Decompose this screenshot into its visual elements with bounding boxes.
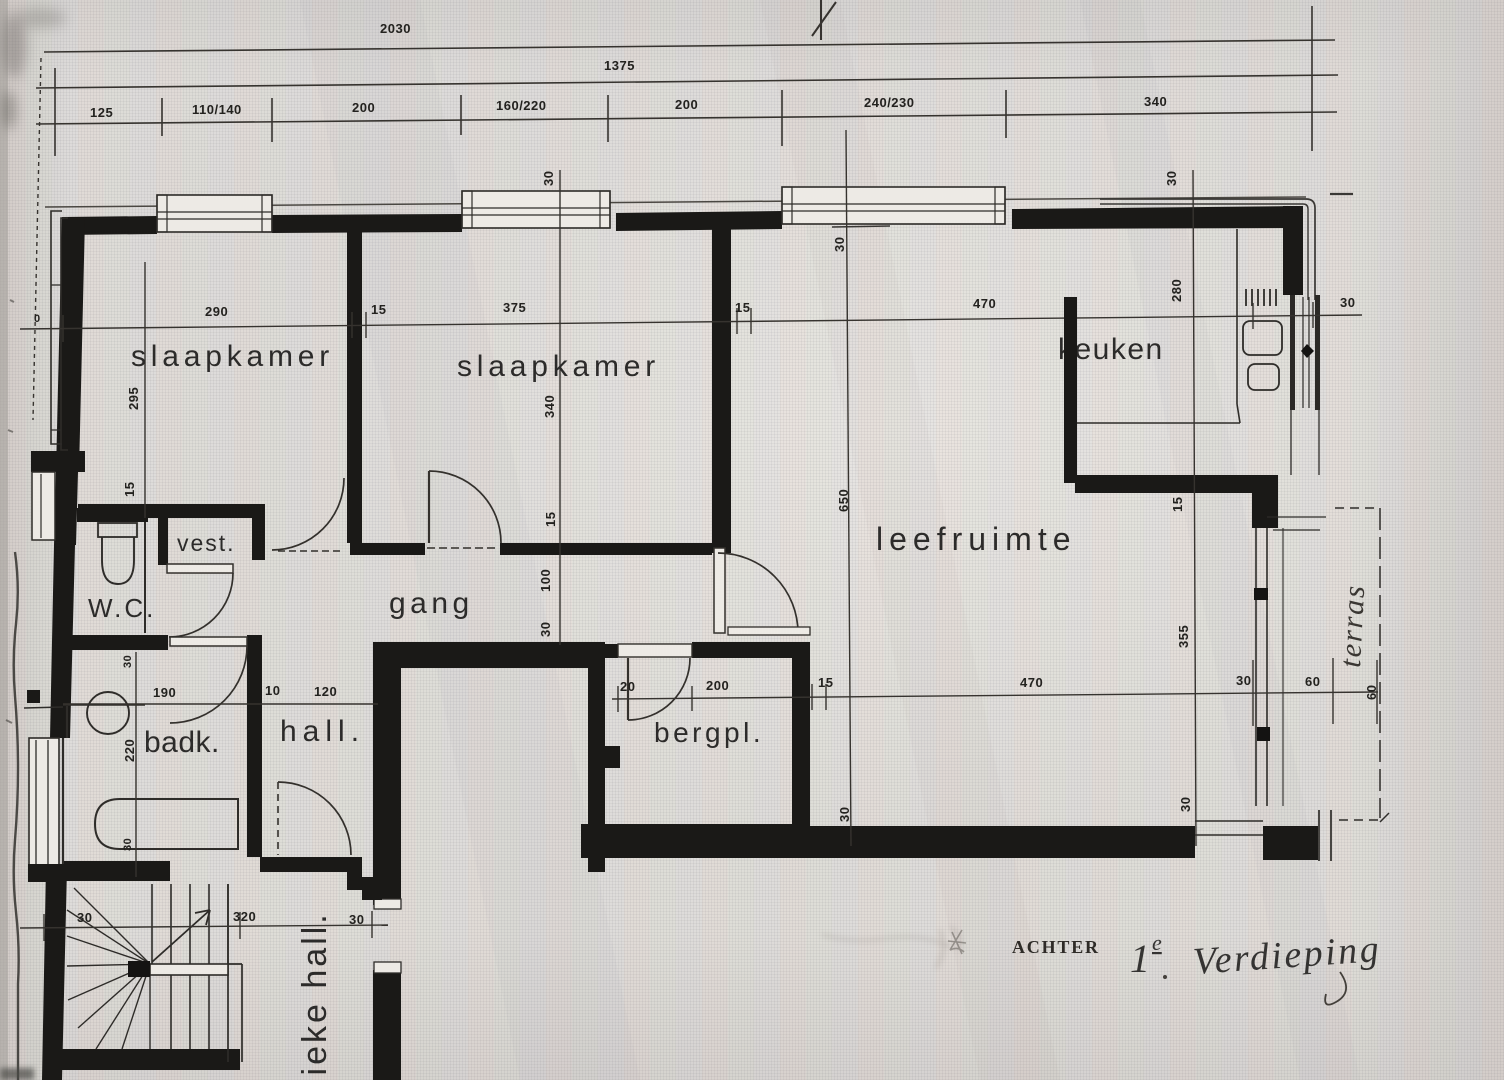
svg-text:650: 650: [836, 489, 851, 512]
svg-text:340: 340: [1144, 94, 1167, 109]
svg-text:200: 200: [352, 100, 375, 115]
svg-text:slaapkamer: slaapkamer: [131, 340, 334, 373]
svg-text:hall.: hall.: [280, 715, 365, 748]
svg-text:30: 30: [1236, 673, 1251, 688]
svg-text:W.C.: W.C.: [88, 593, 156, 623]
svg-text:295: 295: [126, 387, 141, 410]
svg-text:15: 15: [735, 300, 750, 315]
svg-text:280: 280: [1169, 279, 1184, 302]
svg-text:slaapkamer: slaapkamer: [457, 350, 660, 383]
svg-text:terras: terras: [1334, 583, 1371, 668]
svg-text:30: 30: [541, 171, 556, 186]
svg-text:320: 320: [233, 909, 256, 924]
svg-text:1375: 1375: [604, 58, 635, 73]
svg-text:15: 15: [543, 512, 558, 527]
svg-text:1: 1: [1130, 936, 1150, 981]
svg-text:20: 20: [620, 679, 635, 694]
svg-text:30: 30: [77, 910, 92, 925]
svg-text:125: 125: [90, 105, 113, 120]
svg-text:gang: gang: [389, 587, 474, 620]
svg-text:375: 375: [503, 300, 526, 315]
svg-text:Verdieping: Verdieping: [1192, 928, 1383, 983]
svg-text:bergpl.: bergpl.: [654, 717, 764, 748]
svg-text:15: 15: [1170, 497, 1185, 512]
svg-text:340: 340: [542, 395, 557, 418]
svg-text:30: 30: [538, 622, 553, 637]
svg-text:160/220: 160/220: [496, 98, 547, 113]
svg-text:100: 100: [538, 569, 553, 592]
svg-text:30: 30: [1164, 171, 1179, 186]
svg-text:0: 0: [34, 313, 41, 325]
svg-text:15: 15: [818, 675, 833, 690]
svg-text:vest.: vest.: [177, 530, 236, 556]
svg-text:e: e: [1152, 930, 1162, 955]
svg-text:10: 10: [265, 683, 280, 698]
svg-text:30: 30: [122, 838, 134, 851]
svg-text:badk.: badk.: [144, 726, 220, 759]
svg-text:240/230: 240/230: [864, 95, 915, 110]
svg-text:15: 15: [122, 482, 137, 497]
svg-text:470: 470: [1020, 675, 1043, 690]
svg-text:200: 200: [706, 678, 729, 693]
svg-text:ACHTER: ACHTER: [1012, 937, 1100, 957]
svg-text:200: 200: [675, 97, 698, 112]
svg-text:30: 30: [122, 655, 134, 668]
svg-text:leefruimte: leefruimte: [876, 521, 1077, 557]
svg-text:lieke hall.: lieke hall.: [296, 911, 334, 1080]
svg-text:470: 470: [973, 296, 996, 311]
svg-text:2030: 2030: [380, 21, 411, 36]
svg-text:355: 355: [1176, 625, 1191, 648]
svg-text:30: 30: [832, 237, 847, 252]
svg-text:30: 30: [349, 912, 364, 927]
svg-text:110/140: 110/140: [192, 102, 242, 117]
svg-text:190: 190: [153, 685, 176, 700]
svg-text:220: 220: [122, 739, 137, 762]
svg-text:290: 290: [205, 304, 228, 319]
svg-text:30: 30: [1178, 797, 1193, 812]
svg-text:60: 60: [1305, 674, 1320, 689]
svg-text:15: 15: [371, 302, 386, 317]
svg-text:120: 120: [314, 684, 337, 699]
svg-text:30: 30: [1340, 295, 1355, 310]
svg-text:60: 60: [1364, 685, 1379, 700]
svg-text:30: 30: [837, 807, 852, 822]
